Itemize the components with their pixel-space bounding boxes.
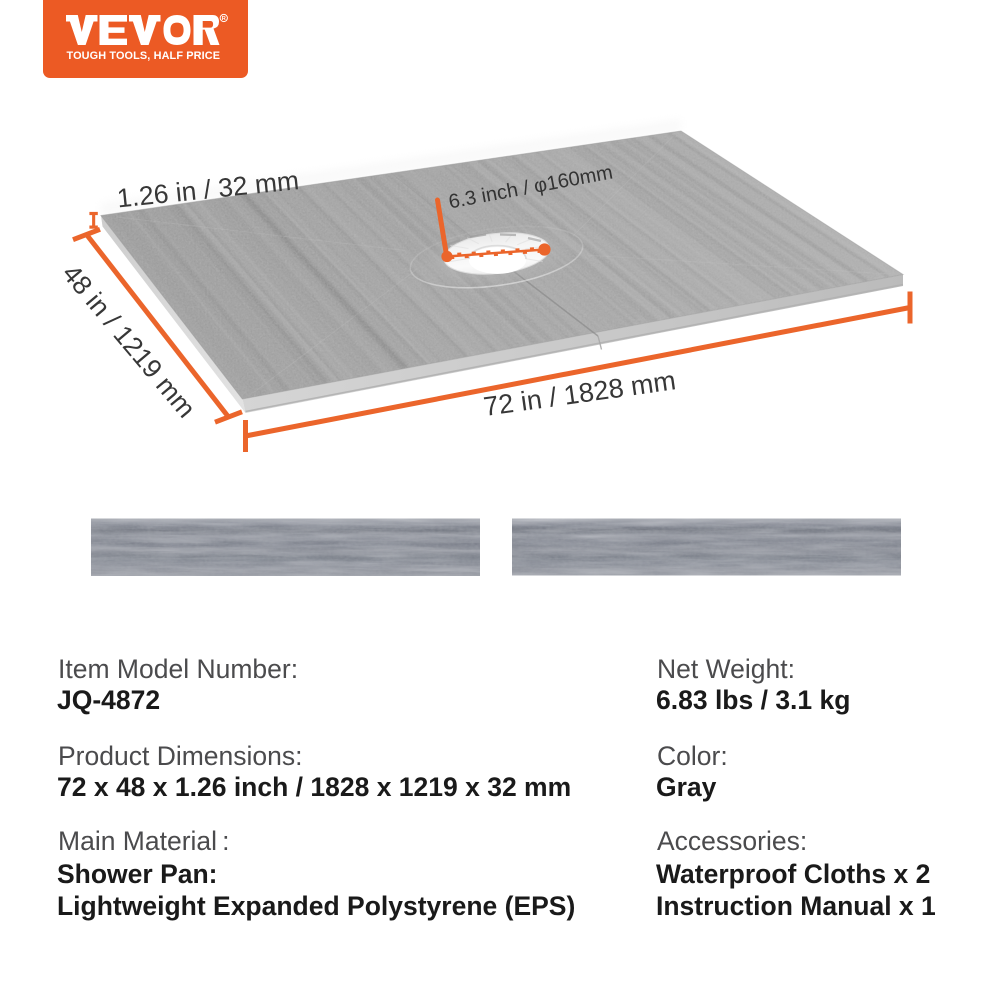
svg-text:TOUGH TOOLS, HALF PRICE: TOUGH TOOLS, HALF PRICE	[66, 50, 220, 62]
svg-text:R: R	[221, 16, 225, 22]
